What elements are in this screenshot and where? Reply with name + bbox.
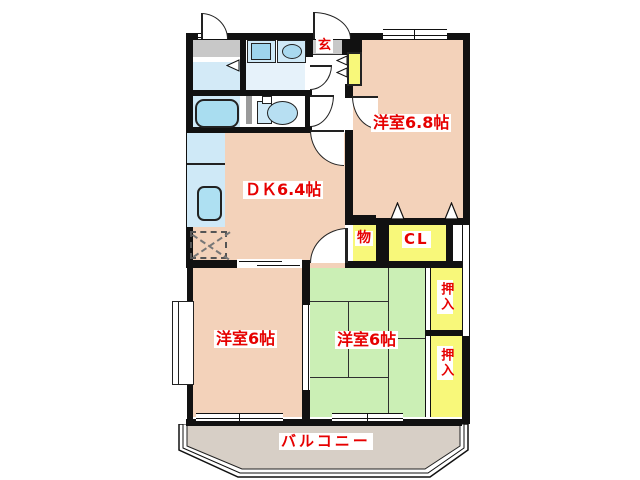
- wall-genkan-left: [306, 39, 313, 57]
- sliding-window-balcony-right: [332, 413, 403, 422]
- label-balcony: バルコニー: [279, 433, 373, 450]
- door-mark-closet-1: [390, 202, 405, 220]
- label-entrance: 玄: [316, 39, 333, 53]
- shoe-cabinet: [347, 52, 362, 86]
- label-bedroom-6-center: 洋室6帖: [335, 331, 398, 349]
- tatami-grid-line: [310, 377, 388, 378]
- wall-right-upper: [463, 33, 470, 225]
- fusuma-between-bedrooms: [302, 305, 309, 390]
- door-arc-service: [201, 13, 228, 39]
- bay-window: [172, 301, 194, 385]
- tatami-grid-line: [310, 301, 388, 302]
- refrigerator-space: [190, 231, 227, 259]
- wall-rooms-divider-top: [302, 260, 310, 305]
- label-bedroom-6-8: 洋室6.8帖: [371, 114, 451, 132]
- bathtub: [195, 99, 239, 128]
- upper-hallway: [246, 62, 305, 90]
- wall-hall-right: [345, 130, 353, 215]
- sliding-door-dk-bedroom: [237, 259, 302, 268]
- wall-dk-bottom: [186, 260, 237, 268]
- wall-cl-right: [446, 225, 453, 261]
- wall-mono-cl-divider: [376, 225, 389, 261]
- window-bedroom68-top: [383, 29, 447, 40]
- wall-left-lower-b: [187, 382, 193, 424]
- wall-right-lower: [462, 336, 470, 424]
- label-closet: CL: [402, 231, 431, 248]
- washing-machine-pan: [247, 40, 276, 63]
- kitchen-sink: [197, 186, 222, 221]
- wall-left-lower-a: [187, 268, 193, 302]
- door-arc-entrance: [313, 12, 351, 39]
- wall-mono-top: [345, 215, 376, 225]
- entry-storage-box: [192, 39, 240, 57]
- wall-rooms-divider-bottom: [302, 390, 310, 424]
- label-bedroom-6-left: 洋室6帖: [214, 330, 277, 348]
- toilet-bowl: [267, 101, 298, 125]
- fusuma-oshiire-upper: [425, 268, 431, 330]
- label-dk: ＤＫ6.4帖: [243, 181, 323, 199]
- toilet-counter: [246, 96, 252, 124]
- fusuma-oshiire-lower: [425, 336, 431, 417]
- wall-below-closets: [345, 261, 462, 268]
- floor-plan: 玄 ＤＫ6.4帖 洋室6.8帖 物 CL 洋室6帖 洋室6帖 押入 押入 バルコ…: [0, 0, 640, 480]
- toilet-handle: [262, 96, 272, 104]
- label-oshiire-lower: 押入: [437, 346, 453, 380]
- label-oshiire-upper: 押入: [437, 280, 453, 314]
- label-storage: 物: [355, 231, 373, 246]
- kitchen-counter: [187, 133, 225, 165]
- washbasin: [277, 40, 306, 63]
- closet-right-gap: [452, 225, 462, 261]
- window-right-side: [462, 225, 470, 336]
- sliding-window-balcony-left: [196, 413, 283, 422]
- door-mark-closet-2: [444, 202, 459, 220]
- door-mark-washroom: [226, 59, 241, 72]
